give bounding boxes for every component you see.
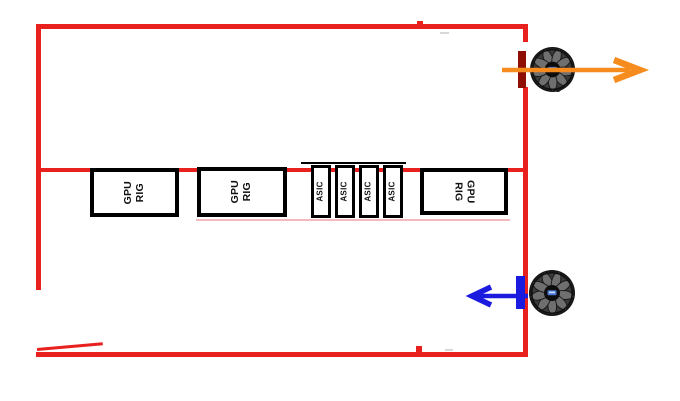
asic-box-2: ASIC [335, 165, 355, 218]
gpu-rig-box-1: GPU RIG [90, 168, 179, 217]
gpu-rig-box-3: GPU RIG [420, 168, 508, 215]
gpu-rig-3-label: GPU RIG [452, 180, 476, 203]
asic-2-label: ASIC [341, 181, 350, 201]
asic-box-3: ASIC [359, 165, 379, 218]
asic-box-4: ASIC [383, 165, 403, 218]
artifact-dash-bottom [445, 349, 453, 351]
wall-tick-bottom [416, 346, 422, 352]
exhaust-airflow-arrow [500, 57, 650, 83]
wall-top [36, 24, 528, 29]
wall-right-upper-stub [523, 24, 528, 42]
asic-shelf-line [301, 162, 406, 164]
gpu-rig-2-label: GPU RIG [230, 180, 254, 203]
wall-left [36, 24, 41, 290]
asic-3-label: ASIC [365, 181, 374, 201]
wall-tick-top [417, 21, 423, 25]
asic-box-1: ASIC [311, 165, 331, 218]
door-leaf [37, 342, 103, 351]
artifact-dash-top [440, 32, 449, 34]
gpu-rig-1-label: GPU RIG [123, 181, 147, 204]
intake-axial-fan-icon [528, 269, 576, 317]
gpu-rig-box-2: GPU RIG [197, 167, 287, 217]
asic-4-label: ASIC [389, 181, 398, 201]
artifact-underline [196, 219, 510, 221]
intake-airflow-arrow [464, 283, 530, 309]
mining-room-floor-plan: GPU RIG GPU RIG ASIC ASIC ASIC ASIC GPU … [0, 0, 680, 401]
asic-1-label: ASIC [317, 181, 326, 201]
wall-bottom [36, 352, 528, 357]
